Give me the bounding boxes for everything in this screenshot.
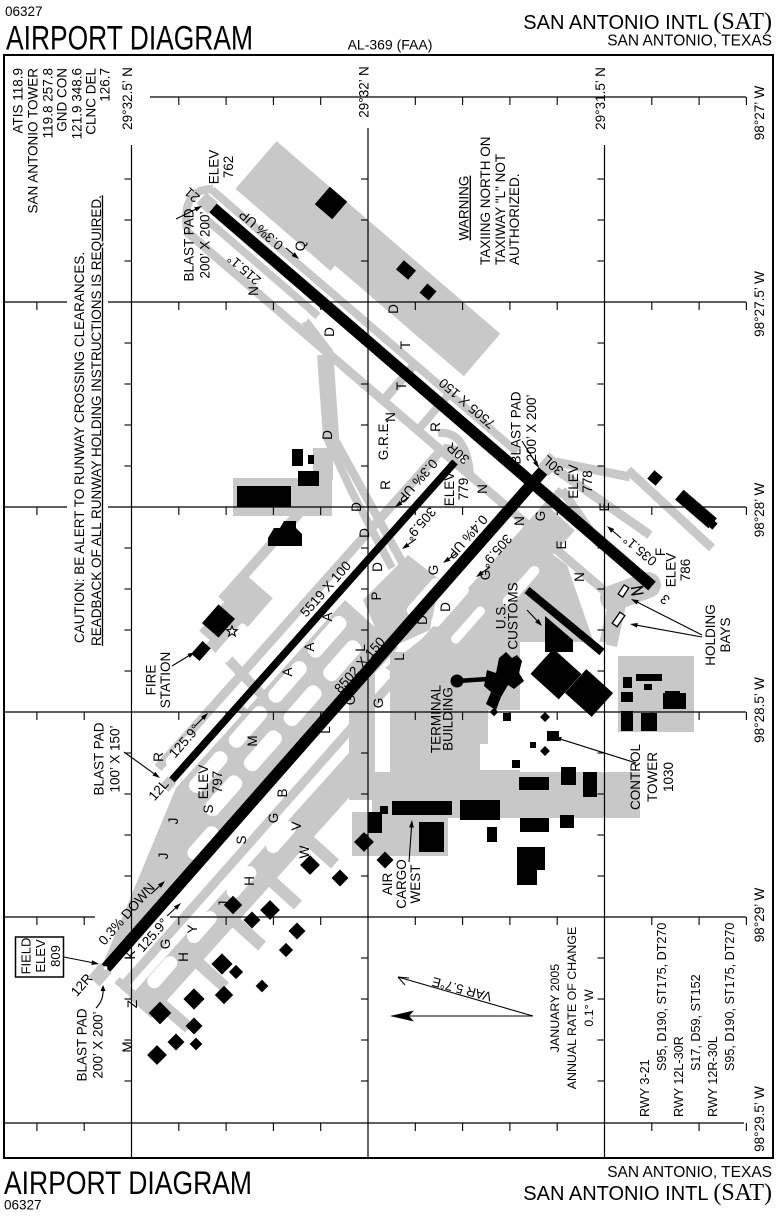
svg-text:HOLDING: HOLDING [703,604,718,666]
svg-text:98°27.5’ W: 98°27.5’ W [752,271,767,337]
svg-text:SAN ANTONIO INTL (SAT): SAN ANTONIO INTL (SAT) [523,9,772,35]
svg-text:ANNUAL RATE OF CHANGE: ANNUAL RATE OF CHANGE [565,927,579,1089]
svg-text:JANUARY 2005: JANUARY 2005 [548,964,562,1053]
svg-text:TAXIWAY "L" NOT: TAXIWAY "L" NOT [493,154,508,265]
svg-text:SAN ANTONIO, TEXAS: SAN ANTONIO, TEXAS [607,1164,772,1181]
svg-text:98°28’ W: 98°28’ W [752,483,767,538]
svg-text:797: 797 [210,771,225,794]
svg-text:R: R [428,422,443,432]
svg-text:200’ X 200’: 200’ X 200’ [524,394,539,461]
svg-text:RWY 12R-30L: RWY 12R-30L [706,1036,720,1117]
svg-text:AIRPORT DIAGRAM: AIRPORT DIAGRAM [4,1165,252,1201]
svg-text:200’ X 200’: 200’ X 200’ [198,211,213,278]
svg-text:29°31.5’ N: 29°31.5’ N [593,67,608,130]
svg-text:FIELD: FIELD [18,938,33,975]
svg-text:G: G [158,939,173,950]
svg-text:98°29.5’ W: 98°29.5’ W [752,1086,767,1152]
svg-text:G: G [426,565,441,576]
svg-text:AL-369 (FAA): AL-369 (FAA) [348,37,433,53]
svg-text:98°29’ W: 98°29’ W [752,888,767,943]
svg-text:ATIS 118.9: ATIS 118.9 [11,68,26,134]
svg-text:G: G [478,570,493,581]
svg-text:RWY 3-21: RWY 3-21 [638,1059,652,1117]
svg-text:N: N [475,484,490,494]
svg-text:BLAST PAD: BLAST PAD [509,391,524,464]
svg-text:W: W [297,845,312,858]
svg-text:ELEV: ELEV [196,765,211,800]
svg-text:BLAST PAD: BLAST PAD [92,722,107,795]
svg-text:D: D [357,528,372,538]
svg-text:S: S [234,835,249,844]
svg-text:FIRE: FIRE [144,665,159,696]
svg-text:98°27’ W: 98°27’ W [752,86,767,141]
svg-text:M: M [120,1041,135,1052]
svg-text:D: D [415,615,430,625]
svg-text:BLAST PAD: BLAST PAD [75,1008,90,1081]
svg-text:RWY 12L-30R: RWY 12L-30R [672,1036,686,1117]
svg-text:D: D [438,602,453,612]
svg-text:1030: 1030 [661,762,676,792]
svg-text:D: D [320,430,335,440]
svg-text:L: L [318,726,333,734]
svg-text:Z: Z [125,1000,140,1008]
svg-text:E: E [597,502,612,511]
svg-text:G.R.E.: G.R.E. [376,420,391,461]
svg-text:ELEV: ELEV [207,150,222,185]
svg-text:06327: 06327 [4,1198,42,1213]
svg-text:AIR: AIR [380,873,395,896]
svg-text:N: N [572,572,587,582]
svg-text:CAUTION: BE ALERT TO RUNWAY C: CAUTION: BE ALERT TO RUNWAY CROSSING CLE… [72,252,87,643]
svg-text:STATION: STATION [158,652,173,709]
svg-text:T: T [398,341,413,349]
svg-text:06327: 06327 [5,4,43,19]
svg-text:V: V [289,821,304,830]
svg-text:779: 779 [456,478,471,501]
svg-text:0.1° W: 0.1° W [582,989,596,1027]
svg-text:READBACK OF ALL RUNWAY HOLDING: READBACK OF ALL RUNWAY HOLDING INSTRUCTI… [89,195,104,646]
svg-text:WARNING: WARNING [457,176,472,241]
svg-text:B: B [275,788,290,797]
svg-text:G: G [343,695,358,706]
svg-text:P: P [369,591,384,600]
svg-text:BLAST PAD: BLAST PAD [182,208,197,281]
svg-text:H: H [176,952,191,962]
svg-text:200’ X 200’: 200’ X 200’ [91,1011,106,1078]
svg-text:TAXIING NORTH ON: TAXIING NORTH ON [478,136,493,265]
svg-text:N: N [246,286,261,296]
svg-text:GND CON: GND CON [55,68,70,132]
svg-text:M: M [245,735,260,746]
svg-text:E: E [554,540,569,549]
svg-text:BAYS: BAYS [718,617,733,652]
svg-text:762: 762 [221,156,236,179]
svg-text:SAN ANTONIO TOWER: SAN ANTONIO TOWER [26,68,41,214]
svg-text:Q: Q [293,241,308,252]
svg-text:ELEV: ELEV [33,939,48,973]
svg-text:A: A [320,612,335,621]
svg-text:Y: Y [185,924,200,933]
svg-text:G: G [533,511,548,522]
svg-text:R: R [378,480,393,490]
svg-text:A: A [302,642,317,651]
svg-text:J: J [216,901,231,908]
svg-text:S17, D59, ST152: S17, D59, ST152 [689,974,703,1071]
svg-text:SAN ANTONIO INTL (SAT): SAN ANTONIO INTL (SAT) [523,1180,772,1206]
svg-text:L: L [392,653,407,661]
svg-text:ELEV: ELEV [566,464,581,499]
svg-text:121.9 348.6: 121.9 348.6 [70,68,85,139]
svg-text:L: L [353,644,368,652]
svg-text:N: N [512,516,527,526]
svg-text:D: D [386,304,401,314]
svg-text:CONTROL: CONTROL [628,744,643,810]
svg-text:29°32.5’ N: 29°32.5’ N [120,67,135,130]
svg-text:J: J [156,853,171,860]
svg-text:A: A [280,667,295,676]
svg-text:J: J [166,818,181,825]
svg-text:786: 786 [678,559,693,582]
svg-text:SAN ANTONIO, TEXAS: SAN ANTONIO, TEXAS [607,33,772,50]
svg-text:WEST: WEST [408,865,423,904]
svg-text:G: G [371,698,386,709]
svg-text:BUILDING: BUILDING [441,687,456,751]
svg-text:CLNC DEL: CLNC DEL [83,68,98,135]
svg-text:N: N [383,412,398,422]
svg-text:F: F [653,548,668,556]
svg-text:ELEV: ELEV [442,472,457,507]
svg-text:126.7: 126.7 [97,68,112,102]
svg-text:H: H [242,876,257,886]
svg-text:S95, D190, ST175, DT270: S95, D190, ST175, DT270 [655,923,669,1071]
svg-text:CUSTOMS: CUSTOMS [506,582,521,649]
svg-text:AUTHORIZED.: AUTHORIZED. [507,173,522,265]
svg-text:CARGO: CARGO [394,859,409,909]
svg-text:S: S [201,804,216,813]
svg-text:D: D [349,502,364,512]
svg-text:TOWER: TOWER [645,752,660,802]
svg-text:D: D [322,327,337,337]
svg-text:D: D [370,562,385,572]
svg-text:29°32’ N: 29°32’ N [357,66,372,117]
svg-text:T: T [394,382,409,390]
svg-text:778: 778 [580,470,595,493]
svg-text:809: 809 [48,945,63,967]
svg-text:R: R [151,752,166,762]
svg-text:119.8 257.8: 119.8 257.8 [41,68,56,138]
svg-text:K: K [123,950,138,959]
svg-text:S95, D190, ST175, DT270: S95, D190, ST175, DT270 [723,923,737,1071]
svg-text:98°28.5’ W: 98°28.5’ W [752,677,767,743]
svg-text:100’ X 150’: 100’ X 150’ [108,725,123,792]
svg-text:G: G [266,813,281,824]
svg-text:ELEV: ELEV [664,553,679,588]
svg-text:AIRPORT DIAGRAM: AIRPORT DIAGRAM [6,20,253,58]
